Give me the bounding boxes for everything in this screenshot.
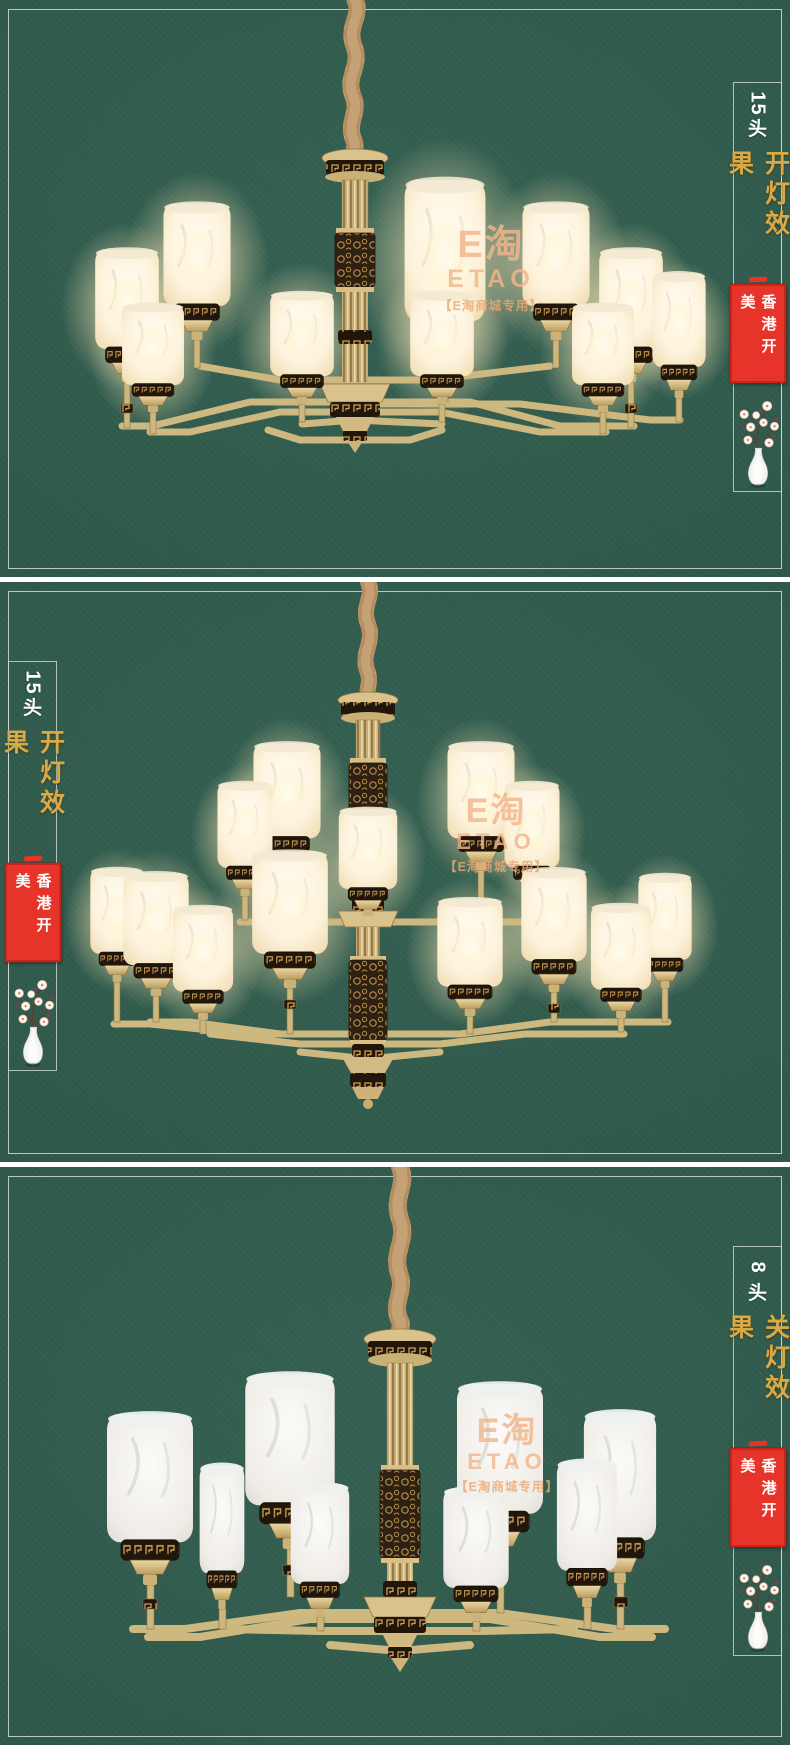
brand-seal: 香港开美 bbox=[730, 1448, 786, 1547]
flower-vase-icon bbox=[736, 1559, 780, 1655]
annotation-column: 8 头 关灯效果 香港开美 bbox=[733, 1246, 782, 1656]
panel-15-head-lit: 15 头 开灯效果 香港开美 bbox=[0, 0, 790, 577]
chandelier-photo-15-head-two-tier bbox=[0, 582, 790, 1162]
head-count-label: 15 头 bbox=[20, 672, 44, 719]
hanging-rope bbox=[365, 582, 370, 694]
head-count-label: 15 头 bbox=[745, 93, 769, 140]
head-count-unit: 头 bbox=[748, 1284, 767, 1304]
panel-15-head-two-tier-lit: 15 头 开灯效果 香港开美 bbox=[0, 582, 790, 1162]
center-column bbox=[364, 1329, 436, 1672]
seal-brush-dash bbox=[748, 276, 766, 282]
hanging-rope bbox=[397, 1167, 402, 1333]
head-count-number: 15 bbox=[747, 91, 768, 115]
head-count-unit: 头 bbox=[748, 120, 767, 140]
flower-vase-icon bbox=[11, 974, 55, 1070]
head-count-number: 8 bbox=[747, 1261, 768, 1273]
annotation-column: 15 头 开灯效果 香港开美 bbox=[733, 82, 782, 492]
panel-8-head-unlit: 8 头 关灯效果 香港开美 bbox=[0, 1167, 790, 1745]
effect-label: 开灯效果 bbox=[0, 729, 69, 844]
chandelier-photo-8-head-unlit bbox=[0, 1167, 790, 1745]
chandelier-photo-15-head-lit bbox=[0, 0, 790, 577]
seal-brush-dash bbox=[23, 855, 41, 861]
head-count-label: 8 头 bbox=[748, 1257, 767, 1304]
product-detail-image: 15 头 开灯效果 香港开美 E淘 ETAO 【E淘商城专用】 bbox=[0, 0, 790, 1757]
brand-seal: 香港开美 bbox=[730, 284, 786, 383]
seal-brush-dash bbox=[748, 1440, 766, 1446]
annotation-column: 15 头 开灯效果 香港开美 bbox=[8, 661, 57, 1071]
head-count-number: 15 bbox=[22, 670, 43, 694]
head-count-unit: 头 bbox=[23, 699, 42, 719]
effect-label: 开灯效果 bbox=[722, 150, 790, 265]
effect-label: 关灯效果 bbox=[722, 1314, 790, 1429]
brand-seal: 香港开美 bbox=[5, 863, 61, 962]
hanging-rope bbox=[351, 0, 357, 156]
flower-vase-icon bbox=[736, 395, 780, 491]
